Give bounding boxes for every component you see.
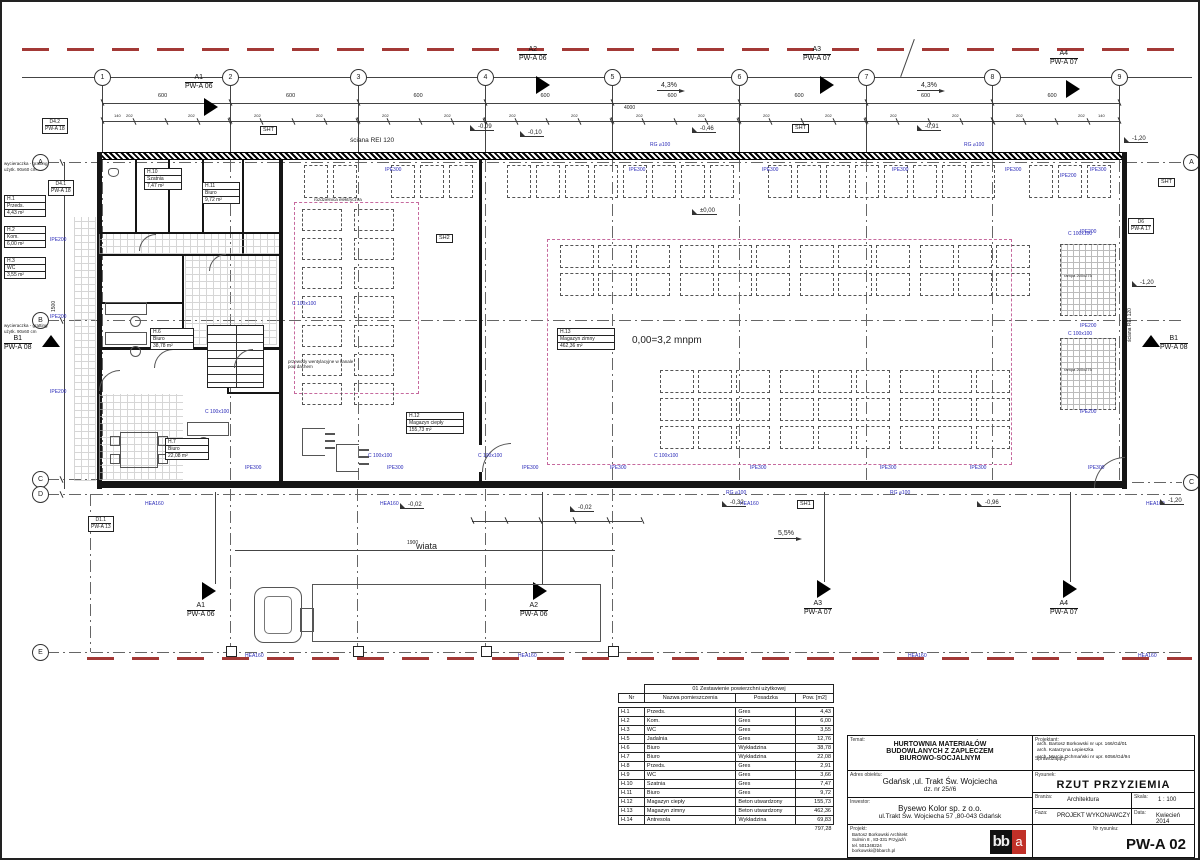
title-block-temat: Temat: HURTOWNIA MATERIAŁÓW BUDOWLANYCH … bbox=[848, 736, 1033, 771]
dimension-value: 202 bbox=[1016, 114, 1023, 118]
shaft-box: SH1 bbox=[797, 500, 814, 509]
storage-rack bbox=[598, 245, 632, 268]
wiata-column bbox=[608, 646, 619, 657]
chair bbox=[110, 454, 120, 464]
storage-rack bbox=[449, 165, 473, 198]
section-marker-label: A3PW-A 07 bbox=[803, 46, 831, 63]
level-marker: ±0,00 bbox=[692, 208, 717, 215]
storage-rack bbox=[876, 245, 910, 268]
section-marker-label: A2PW-A 06 bbox=[519, 46, 547, 63]
level-marker: -0,02 bbox=[400, 502, 424, 509]
steel-member-label: HEA160 bbox=[1138, 654, 1157, 659]
inwestor-line: ul.Trakt Św. Wojciecha 57 ,80-043 Gdańsk bbox=[848, 813, 1032, 820]
title-block-branza: Branża: Architektura bbox=[1033, 793, 1132, 809]
storage-rack bbox=[900, 426, 934, 449]
storage-rack bbox=[660, 398, 694, 421]
dimension-value: 202 bbox=[254, 114, 261, 118]
storage-rack bbox=[856, 370, 890, 393]
grid-bubble-column: 6 bbox=[731, 69, 748, 86]
drawing-number: PW-A 02 bbox=[1126, 836, 1186, 853]
section-marker-arrow bbox=[204, 98, 218, 116]
storage-rack bbox=[818, 426, 852, 449]
dimension-value: 600 bbox=[668, 94, 677, 100]
tile-floor bbox=[99, 234, 279, 254]
data-value: Kwiecień 2014 bbox=[1156, 813, 1194, 825]
room-label: H.1Przeds.4,43 m² bbox=[4, 195, 46, 217]
section-marker-label: A3PW-A 07 bbox=[804, 600, 832, 617]
hall-separating-wall bbox=[479, 472, 482, 482]
room-label: H.13Magazyn zimny462,36 m² bbox=[557, 328, 615, 350]
storage-rack bbox=[838, 245, 872, 268]
storage-rack bbox=[304, 165, 328, 198]
section-marker-arrow bbox=[817, 580, 831, 598]
inwestor-label: Inwestor: bbox=[850, 799, 870, 805]
slope-annotation: 4,3% bbox=[917, 82, 941, 91]
steel-member-label: IPE300 bbox=[1088, 466, 1104, 471]
section-marker-arrow bbox=[202, 582, 216, 600]
storage-rack bbox=[920, 273, 954, 296]
table-row: H.10Szatnia Gres7,47 bbox=[619, 780, 834, 789]
grid-line-column bbox=[230, 489, 231, 650]
storage-rack bbox=[780, 398, 814, 421]
area-schedule-table: 01 Zestawienie powierzchni użytkowej NrN… bbox=[618, 684, 834, 833]
steel-member-label: IPE300 bbox=[387, 466, 403, 471]
storage-rack bbox=[698, 370, 732, 393]
dimension-value: 600 bbox=[414, 94, 423, 100]
steel-member-label: IPE200 bbox=[50, 315, 66, 320]
room-label: H.2Kom.6,00 m² bbox=[4, 226, 46, 248]
storage-rack bbox=[565, 165, 589, 198]
storage-rack bbox=[680, 273, 714, 296]
skala-value: 1 : 100 bbox=[1158, 797, 1176, 803]
steel-member-label: RG ⌀100 bbox=[964, 143, 984, 148]
exterior-grating-strip bbox=[74, 217, 96, 481]
desk bbox=[105, 302, 147, 315]
title-block-faza: Faza: PROJEKT WYKONAWCZY bbox=[1033, 809, 1132, 825]
storage-rack bbox=[838, 273, 872, 296]
wall-fire-rating-note: ściana REI 120 bbox=[1128, 308, 1133, 342]
exterior-wall-bottom bbox=[97, 481, 1127, 488]
steel-member-label: IPE300 bbox=[522, 466, 538, 471]
storage-rack bbox=[800, 245, 834, 268]
storage-rack bbox=[354, 354, 394, 376]
projektant-label: Projektant: bbox=[1035, 737, 1059, 743]
storage-rack bbox=[976, 398, 1010, 421]
section-marker-arrow bbox=[1066, 80, 1080, 98]
section-line bbox=[824, 492, 825, 582]
slope-annotation: 4,3% bbox=[657, 82, 681, 91]
chair bbox=[110, 436, 120, 446]
temat-line: BIUROWO-SOCJALNYM bbox=[848, 755, 1032, 762]
steel-member-label: HEA160 bbox=[380, 502, 399, 507]
shaft-box: SHT bbox=[792, 124, 809, 133]
room-label: H.3WC3,55 m² bbox=[4, 257, 46, 279]
storage-rack bbox=[354, 238, 394, 260]
shaft-box: SH2 bbox=[436, 234, 453, 243]
wall-fire-rating-note: ściana REI 120 bbox=[350, 138, 394, 145]
table-row: H.8Przeds. Gres2,91 bbox=[619, 762, 834, 771]
dimension-value: 202 bbox=[571, 114, 578, 118]
shaft-box: SHT bbox=[260, 126, 277, 135]
steel-member-label: C 100x100 bbox=[478, 454, 502, 459]
truck-cab-window bbox=[264, 596, 292, 634]
steel-member-label: HEA160 bbox=[518, 654, 537, 659]
grid-bubble-column: 4 bbox=[477, 69, 494, 86]
table-row: H.13Magazyn zimny Beton utwardzony462,36 bbox=[619, 807, 834, 816]
table-title: 01 Zestawienie powierzchni użytkowej bbox=[644, 685, 833, 694]
steel-member-label: IPE300 bbox=[892, 168, 908, 173]
sprawdzajacy-label: Sprawdzający: bbox=[1035, 756, 1068, 762]
dimension-value: 202 bbox=[382, 114, 389, 118]
storage-rack bbox=[354, 296, 394, 318]
rysunek-label: Rysunek: bbox=[1035, 772, 1056, 778]
dimension-value: 202 bbox=[698, 114, 705, 118]
grid-bubble-column: 2 bbox=[222, 69, 239, 86]
table-row: H.12Magazyn ciepły Beton utwardzony155,7… bbox=[619, 798, 834, 807]
table-row: H.6Biuro Wykładzina38,78 bbox=[619, 744, 834, 753]
storage-rack bbox=[856, 426, 890, 449]
area-table: 01 Zestawienie powierzchni użytkowej NrN… bbox=[618, 684, 834, 833]
office-separating-wall bbox=[279, 160, 283, 482]
dimension-value: 202 bbox=[636, 114, 643, 118]
storage-rack bbox=[971, 165, 995, 198]
storage-rack bbox=[900, 398, 934, 421]
section-marker-label: A4PW-A 07 bbox=[1050, 600, 1078, 617]
steel-member-label: IPE300 bbox=[880, 466, 896, 471]
temat-label: Temat: bbox=[850, 737, 865, 743]
storage-rack bbox=[333, 165, 357, 198]
steel-member-label: C 100x100 bbox=[1068, 232, 1092, 237]
forklift-symbol bbox=[302, 428, 325, 456]
level-marker: -0,32 bbox=[722, 500, 746, 507]
storage-rack bbox=[780, 370, 814, 393]
steel-member-label: C 100x100 bbox=[368, 454, 392, 459]
inwestor-line: Bysewo Kolor sp. z o.o. bbox=[848, 804, 1032, 813]
level-marker: -1,20 bbox=[1160, 498, 1184, 505]
title-block-inwestor: Inwestor: Bysewo Kolor sp. z o.o. ul.Tra… bbox=[848, 798, 1033, 825]
nr-label: Nr rysunku: bbox=[1093, 826, 1119, 832]
skala-label: Skala: bbox=[1134, 794, 1148, 800]
steel-member-label: RG ⌀100 bbox=[890, 491, 910, 496]
storage-rack bbox=[354, 267, 394, 289]
faza-label: Faza: bbox=[1035, 810, 1048, 816]
storage-rack bbox=[660, 426, 694, 449]
section-marker-label: A4PW-A 07 bbox=[1050, 50, 1078, 67]
storage-rack bbox=[818, 398, 852, 421]
shaft-box: SHT bbox=[1158, 178, 1175, 187]
grid-bubble-row: D bbox=[32, 486, 49, 503]
branza-label: Branża: bbox=[1035, 794, 1052, 800]
dimension-value: 600 bbox=[158, 94, 167, 100]
grid-bubble-row: E bbox=[32, 644, 49, 661]
steel-member-label: IPE200 bbox=[50, 238, 66, 243]
table-row: H.1Przeds. Gres4,43 bbox=[619, 708, 834, 717]
dimension-value: 202 bbox=[952, 114, 959, 118]
interior-wall bbox=[135, 160, 137, 234]
storage-rack bbox=[976, 370, 1010, 393]
section-marker-label: A1PW-A 06 bbox=[185, 74, 213, 91]
storage-rack bbox=[1058, 165, 1082, 198]
storage-rack bbox=[636, 273, 670, 296]
adres-label: Adres obiektu: bbox=[850, 772, 882, 778]
section-marker-label: A1PW-A 06 bbox=[187, 602, 215, 619]
table-header-row: NrNazwa pomieszczenia PosadzkaPow. [m2] bbox=[619, 694, 834, 703]
storage-rack bbox=[594, 165, 618, 198]
steel-member-label: IPE300 bbox=[1090, 168, 1106, 173]
datum-note: 0,00=3,2 mnpm bbox=[632, 336, 702, 347]
table-row: H.3WC Gres3,55 bbox=[619, 726, 834, 735]
loading-ramp bbox=[1060, 338, 1116, 410]
room-label: H.6Biuro38,78 m² bbox=[150, 328, 194, 350]
storage-rack bbox=[302, 209, 342, 231]
storage-rack bbox=[681, 165, 705, 198]
dimension-value: 202 bbox=[763, 114, 770, 118]
grid-bubble-row: C bbox=[1183, 474, 1200, 491]
steel-member-label: IPE300 bbox=[970, 466, 986, 471]
storage-rack bbox=[780, 426, 814, 449]
dimension-tick bbox=[641, 517, 645, 524]
storage-rack bbox=[826, 165, 850, 198]
doormat-note: wycieraczka - gratting bbox=[4, 324, 48, 329]
section-marker-arrow bbox=[536, 76, 550, 94]
level-marker: -0,96 bbox=[977, 500, 1001, 507]
detail-reference: D4.1PW-A 18 bbox=[48, 180, 74, 196]
doormat-note: wycieraczka - gratting bbox=[4, 162, 48, 167]
level-marker: -0,10 bbox=[520, 130, 544, 137]
dimension-value: 202 bbox=[825, 114, 832, 118]
steel-member-label: IPE300 bbox=[1005, 168, 1021, 173]
storage-rack bbox=[710, 165, 734, 198]
grid-bubble-row: A bbox=[1183, 154, 1200, 171]
storage-rack bbox=[736, 370, 770, 393]
bba-logo: bb a bbox=[990, 830, 1026, 854]
temat-line: HURTOWNIA MATERIAŁÓW bbox=[848, 741, 1032, 748]
steel-member-label: IPE300 bbox=[610, 466, 626, 471]
table-row: H.7Biuro Wykładzina22,08 bbox=[619, 753, 834, 762]
section-line bbox=[542, 492, 543, 584]
dining-table bbox=[120, 432, 158, 468]
steel-member-label: HEA160 bbox=[908, 654, 927, 659]
storage-rack bbox=[736, 426, 770, 449]
title-block-empty-cell bbox=[1164, 736, 1194, 771]
storage-rack bbox=[598, 273, 632, 296]
storage-rack bbox=[938, 398, 972, 421]
storage-rack bbox=[698, 426, 732, 449]
grid-line-row bbox=[47, 162, 1182, 163]
level-marker: -1,20 bbox=[1132, 280, 1156, 287]
dimension-value: 202 bbox=[316, 114, 323, 118]
storage-rack bbox=[536, 165, 560, 198]
steel-member-label: IPE200 bbox=[50, 390, 66, 395]
room-label: H.11Biuro9,72 m² bbox=[202, 182, 240, 204]
dimension-value: 600 bbox=[541, 94, 550, 100]
toilet-fixture bbox=[108, 168, 119, 177]
grid-bubble-column: 5 bbox=[604, 69, 621, 86]
storage-rack bbox=[302, 267, 342, 289]
title-block: Temat: HURTOWNIA MATERIAŁÓW BUDOWLANYCH … bbox=[847, 735, 1195, 858]
interior-wall bbox=[227, 392, 283, 394]
steel-member-label: C 100x100 bbox=[205, 410, 229, 415]
doormat-note: użytk. 90x60 cm bbox=[4, 168, 37, 173]
forklift-symbol bbox=[336, 444, 359, 472]
storage-rack bbox=[942, 165, 966, 198]
electrical-note: rozdzielnica elektryczna bbox=[314, 198, 362, 203]
dimension-value: 600 bbox=[1048, 94, 1057, 100]
grid-bubble-column: 7 bbox=[858, 69, 875, 86]
logo-a: a bbox=[1012, 830, 1026, 854]
storage-rack bbox=[818, 370, 852, 393]
site-line bbox=[900, 39, 915, 77]
ramp-label: rampa 200x275 bbox=[1064, 274, 1092, 278]
title-block-skala: Skala: 1 : 100 bbox=[1132, 793, 1194, 809]
title-block-rysunek: Rysunek: RZUT PRZYZIEMIA bbox=[1033, 771, 1194, 793]
table-row: H.9WC Gres3,66 bbox=[619, 771, 834, 780]
storage-rack bbox=[938, 426, 972, 449]
table-row: H.5Jadalnia Gres12,76 bbox=[619, 735, 834, 744]
storage-rack bbox=[718, 273, 752, 296]
table-row: H.14Antresola Wykładzina69,83 bbox=[619, 816, 834, 825]
title-block-data: Data: Kwiecień 2014 bbox=[1132, 809, 1194, 825]
steel-member-label: RG ⌀100 bbox=[650, 143, 670, 148]
title-block-projektant: Projektant: arch. Bartosz Borkowski nr u… bbox=[1033, 736, 1164, 771]
dimension-line bbox=[102, 103, 1119, 104]
adres-line: dz. nr 25//6 bbox=[848, 786, 1032, 793]
storage-rack bbox=[996, 245, 1030, 268]
storage-rack bbox=[797, 165, 821, 198]
level-marker: -0,02 bbox=[570, 505, 594, 512]
steel-member-label: IPE200 bbox=[1080, 410, 1096, 415]
storage-rack bbox=[354, 325, 394, 347]
dimension-value: 600 bbox=[921, 94, 930, 100]
dimension-value: 202 bbox=[188, 114, 195, 118]
table-row: H.11Biuro Gres9,72 bbox=[619, 789, 834, 798]
storage-rack bbox=[698, 398, 732, 421]
storage-rack bbox=[876, 273, 910, 296]
desk bbox=[187, 422, 229, 436]
table-total: 797,28 bbox=[796, 825, 834, 834]
wiata-column bbox=[353, 646, 364, 657]
floor-plan: 123456789ABCDEAC600600600600600600600600… bbox=[2, 2, 1200, 860]
grid-line-column bbox=[612, 489, 613, 650]
storage-rack bbox=[856, 398, 890, 421]
doormat-note: użytk. 90x60 cm bbox=[4, 330, 37, 335]
grid-bubble-column: 8 bbox=[984, 69, 1001, 86]
drawing-sheet: 123456789ABCDEAC600600600600600600600600… bbox=[0, 0, 1200, 860]
steel-member-label: IPE300 bbox=[750, 466, 766, 471]
storage-rack bbox=[958, 245, 992, 268]
storage-rack bbox=[560, 273, 594, 296]
storage-rack bbox=[560, 245, 594, 268]
logo-bb: bb bbox=[990, 830, 1012, 854]
dimension-value: 4000 bbox=[624, 106, 635, 111]
level-marker: -0,46 bbox=[692, 126, 716, 133]
data-label: Data: bbox=[1134, 810, 1146, 816]
storage-rack bbox=[636, 245, 670, 268]
level-marker: -1,20 bbox=[1124, 136, 1148, 143]
room-label: H.10Szatnia7,47 m² bbox=[144, 168, 182, 190]
grid-bubble-column: 9 bbox=[1111, 69, 1128, 86]
room-label: H.12Magazyn ciepły155,73 m² bbox=[406, 412, 464, 434]
dimension-value: 140 bbox=[1098, 114, 1105, 118]
chair bbox=[130, 316, 141, 327]
storage-rack bbox=[736, 398, 770, 421]
hall-separating-wall bbox=[479, 160, 482, 445]
grid-bubble-column: 3 bbox=[350, 69, 367, 86]
section-marker-arrow bbox=[42, 335, 60, 347]
storage-rack bbox=[302, 383, 342, 405]
section-marker-arrow bbox=[1063, 580, 1077, 598]
dimension-value: 202 bbox=[1078, 114, 1085, 118]
storage-rack bbox=[920, 245, 954, 268]
storage-rack bbox=[756, 245, 790, 268]
dimension-value: 202 bbox=[444, 114, 451, 118]
storage-rack bbox=[680, 245, 714, 268]
steel-member-label: HEA160 bbox=[245, 654, 264, 659]
dimension-value: 202 bbox=[126, 114, 133, 118]
storage-rack bbox=[756, 273, 790, 296]
level-marker: -0,91 bbox=[917, 124, 941, 131]
steel-member-label: IPE200 bbox=[1060, 174, 1076, 179]
dimension-value: 202 bbox=[890, 114, 897, 118]
storage-rack bbox=[302, 238, 342, 260]
desk bbox=[105, 332, 147, 345]
title-block-projekt: Projekt: Bartosz Borkowski Architekt Sul… bbox=[848, 825, 1033, 857]
steel-member-label: IPE200 bbox=[1080, 324, 1096, 329]
storage-rack bbox=[958, 273, 992, 296]
storage-rack bbox=[718, 245, 752, 268]
faza-value: PROJEKT WYKONAWCZY bbox=[1057, 813, 1130, 819]
detail-reference: D6PW-A 17 bbox=[1128, 218, 1154, 234]
grid-bubble-column: 1 bbox=[94, 69, 111, 86]
section-marker-arrow bbox=[820, 76, 834, 94]
storage-rack bbox=[976, 426, 1010, 449]
grid-line-row bbox=[1132, 482, 1182, 483]
title-block-adres: Adres obiektu: Gdańsk ,ul. Trakt Św. Woj… bbox=[848, 771, 1033, 798]
exterior-wall-top bbox=[97, 152, 1127, 160]
section-line bbox=[1070, 492, 1071, 582]
steel-member-label: IPE300 bbox=[762, 168, 778, 173]
title-block-nr: Nr rysunku: PW-A 02 bbox=[1033, 825, 1194, 857]
steel-member-label: IPE300 bbox=[629, 168, 645, 173]
wiata-column bbox=[226, 646, 237, 657]
section-marker-label: B1PW-A 08 bbox=[1160, 335, 1188, 352]
steel-member-label: RG ⌀100 bbox=[726, 491, 746, 496]
steel-member-label: IPE300 bbox=[385, 168, 401, 173]
dimension-value: 140 bbox=[114, 114, 121, 118]
truck-trailer bbox=[312, 584, 601, 642]
property-boundary-line bbox=[22, 48, 1182, 51]
storage-rack bbox=[996, 273, 1030, 296]
adres-line: Gdańsk ,ul. Trakt Św. Wojciecha bbox=[848, 777, 1032, 786]
storage-rack bbox=[900, 370, 934, 393]
dimension-value: 202 bbox=[509, 114, 516, 118]
dimension-line bbox=[472, 521, 642, 522]
storage-rack bbox=[652, 165, 676, 198]
steel-member-label: IPE300 bbox=[245, 466, 261, 471]
dimension-value: 1500 bbox=[52, 301, 57, 312]
storage-rack bbox=[938, 370, 972, 393]
storage-rack bbox=[800, 273, 834, 296]
steel-member-label: C 100x100 bbox=[292, 302, 316, 307]
dimension-line bbox=[64, 162, 65, 489]
door-swing-arc bbox=[1094, 457, 1125, 488]
drawing-title: RZUT PRZYZIEMIA bbox=[1033, 771, 1194, 791]
room-label: H.7Biuro22,08 m² bbox=[165, 438, 209, 460]
wiata-column bbox=[481, 646, 492, 657]
section-line bbox=[215, 492, 216, 584]
storage-rack bbox=[855, 165, 879, 198]
storage-rack bbox=[913, 165, 937, 198]
